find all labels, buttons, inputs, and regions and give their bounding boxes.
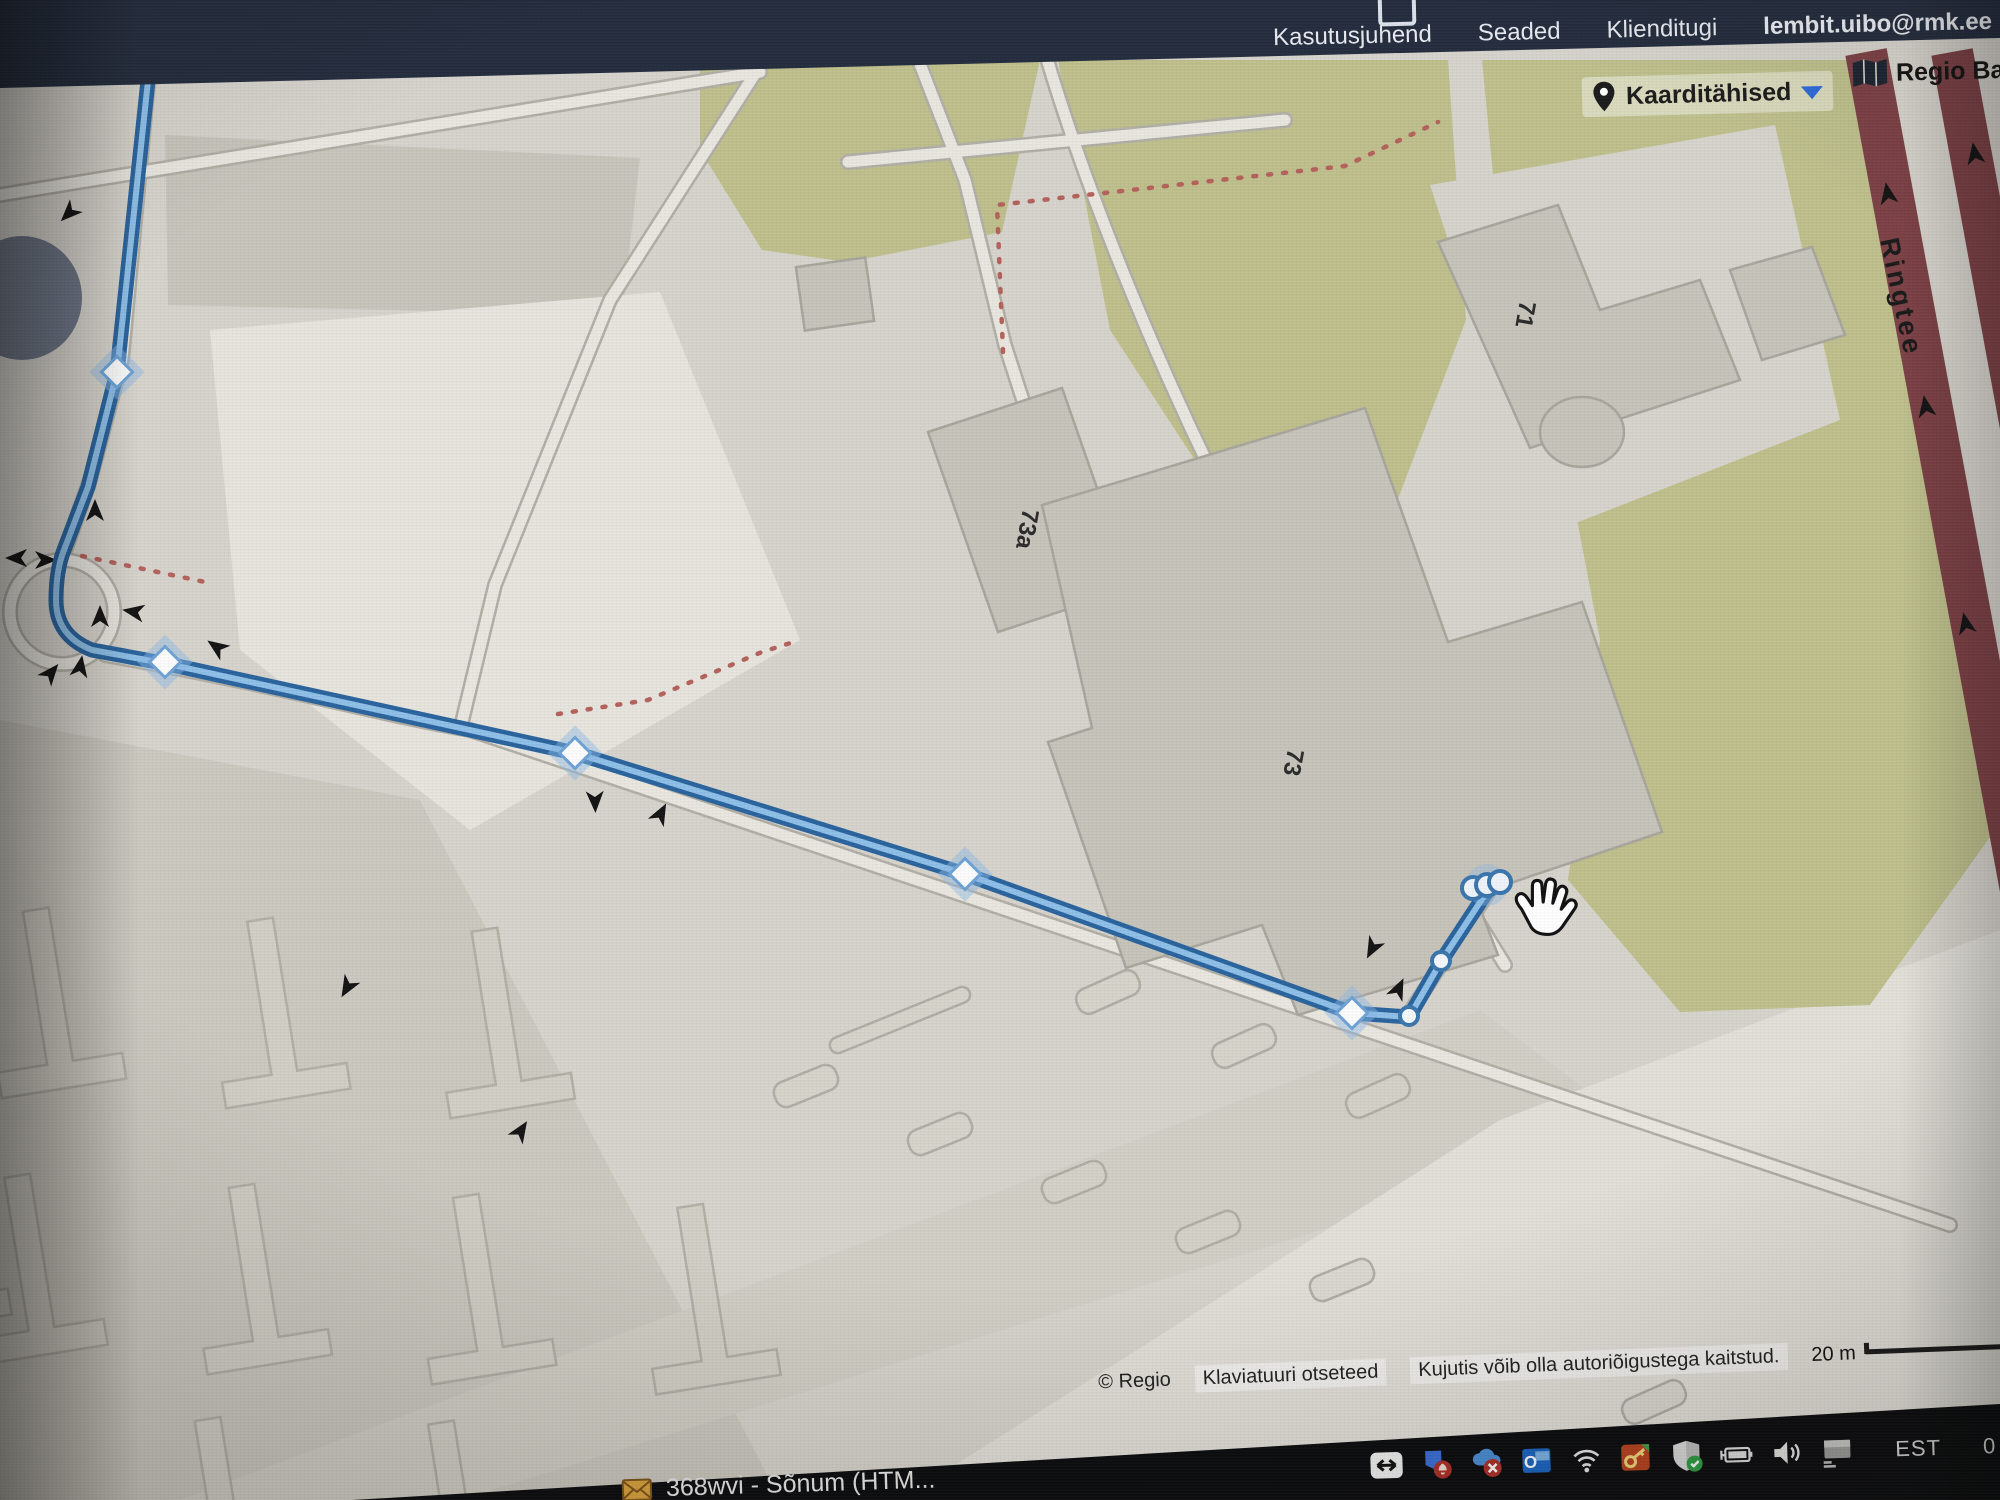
- vpn-key-icon[interactable]: [1619, 1440, 1654, 1475]
- taskbar-window-label: 368wvi - Sõnum (HTM...: [665, 1465, 935, 1500]
- scale-label: 20 m: [1811, 1342, 1856, 1367]
- envelope-icon: [619, 1471, 654, 1500]
- outlook-icon[interactable]: O: [1519, 1443, 1554, 1478]
- folded-map-icon: [1852, 58, 1889, 89]
- basemap-selector[interactable]: Regio Balt: [1852, 53, 2000, 89]
- wifi-icon[interactable]: [1569, 1441, 1604, 1476]
- language-indicator[interactable]: EST: [1895, 1435, 1942, 1462]
- basemap-label: Regio Balt: [1896, 55, 2000, 87]
- monitor-screen: 71 73a 73 Ringtee: [0, 0, 2000, 1500]
- building-label-73: 73: [1277, 747, 1308, 778]
- teamviewer-icon[interactable]: [1369, 1448, 1404, 1483]
- building-label-71: 71: [1509, 299, 1540, 330]
- clock-partial[interactable]: 0: [1983, 1433, 1996, 1459]
- speaker-icon[interactable]: [1769, 1435, 1804, 1470]
- taskbar-window-button[interactable]: 368wvi - Sõnum (HTM...: [619, 1462, 935, 1500]
- window-icon: [1378, 0, 1417, 26]
- map-canvas[interactable]: 71 73a 73 Ringtee: [0, 0, 2000, 1500]
- sync-error-icon[interactable]: [1469, 1445, 1504, 1480]
- notifications-icon[interactable]: [1419, 1446, 1454, 1481]
- menu-seaded[interactable]: Seaded: [1477, 18, 1560, 48]
- map-scale: 20 m: [1811, 1337, 2000, 1367]
- touch-keyboard-icon[interactable]: [1819, 1434, 1854, 1469]
- chevron-down-icon: [1801, 86, 1823, 100]
- menu-klienditugi[interactable]: Klienditugi: [1606, 14, 1717, 45]
- system-tray: O: [1369, 1429, 1996, 1483]
- legend-label: Kaarditähised: [1626, 77, 1792, 110]
- location-pin-icon: [1592, 80, 1617, 113]
- defender-shield-icon[interactable]: [1669, 1438, 1704, 1473]
- svg-text:O: O: [1524, 1453, 1538, 1472]
- scale-bar: [1863, 1337, 2000, 1360]
- battery-icon[interactable]: [1719, 1437, 1754, 1472]
- map-legend-dropdown[interactable]: Kaarditähised: [1582, 71, 1834, 118]
- copyright-text: © Regio: [1098, 1369, 1171, 1395]
- user-email[interactable]: lembit.uibo@rmk.ee: [1763, 8, 1992, 41]
